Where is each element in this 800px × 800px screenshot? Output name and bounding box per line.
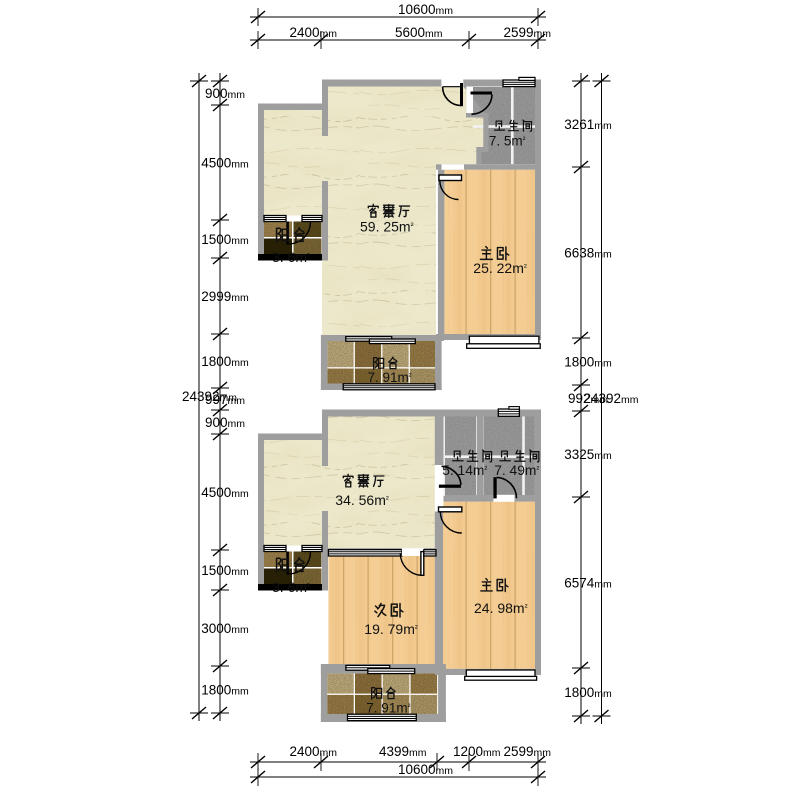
svg-text:2400mm: 2400mm xyxy=(290,744,338,759)
svg-text:1200mm: 1200mm xyxy=(453,744,501,759)
svg-text:900mm: 900mm xyxy=(205,415,245,430)
svg-text:3. 6m²: 3. 6m² xyxy=(272,249,310,265)
svg-text:10600mm: 10600mm xyxy=(398,762,453,777)
svg-text:7. 49m²: 7. 49m² xyxy=(494,463,539,478)
svg-text:34. 56m²: 34. 56m² xyxy=(335,492,389,508)
svg-text:7. 91m²: 7. 91m² xyxy=(366,701,410,716)
svg-text:1500mm: 1500mm xyxy=(201,232,249,247)
svg-text:900mm: 900mm xyxy=(205,86,245,101)
svg-text:4500mm: 4500mm xyxy=(201,156,249,171)
svg-text:1800mm: 1800mm xyxy=(564,685,612,700)
svg-text:24. 98m²: 24. 98m² xyxy=(474,600,528,616)
svg-text:7. 5m²: 7. 5m² xyxy=(489,134,526,149)
svg-text:59. 25m²: 59. 25m² xyxy=(360,219,414,235)
svg-text:1800mm: 1800mm xyxy=(564,355,612,370)
svg-text:7. 91m²: 7. 91m² xyxy=(368,370,412,385)
svg-text:3261mm: 3261mm xyxy=(564,117,612,132)
svg-text:3325mm: 3325mm xyxy=(564,447,612,462)
svg-text:1500mm: 1500mm xyxy=(201,563,249,578)
svg-text:1800mm: 1800mm xyxy=(201,354,249,369)
svg-text:10600mm: 10600mm xyxy=(398,2,453,17)
svg-text:3000mm: 3000mm xyxy=(201,621,249,636)
svg-text:4500mm: 4500mm xyxy=(201,485,249,500)
svg-text:24392mm: 24392mm xyxy=(583,391,638,406)
svg-text:2999mm: 2999mm xyxy=(201,289,249,304)
svg-text:19. 79m²: 19. 79m² xyxy=(364,621,418,637)
svg-text:997mm: 997mm xyxy=(205,392,245,407)
svg-text:2400mm: 2400mm xyxy=(290,25,338,40)
svg-text:5. 14m²: 5. 14m² xyxy=(442,463,487,478)
svg-text:3. 6m²: 3. 6m² xyxy=(272,579,310,595)
svg-text:5600mm: 5600mm xyxy=(395,25,443,40)
svg-text:1800mm: 1800mm xyxy=(201,683,249,698)
svg-text:4399mm: 4399mm xyxy=(379,744,427,759)
svg-text:2599mm: 2599mm xyxy=(504,25,552,40)
svg-text:25. 22m²: 25. 22m² xyxy=(473,260,527,276)
svg-text:6638mm: 6638mm xyxy=(564,246,612,261)
svg-text:6574mm: 6574mm xyxy=(564,576,612,591)
svg-text:2599mm: 2599mm xyxy=(504,744,552,759)
